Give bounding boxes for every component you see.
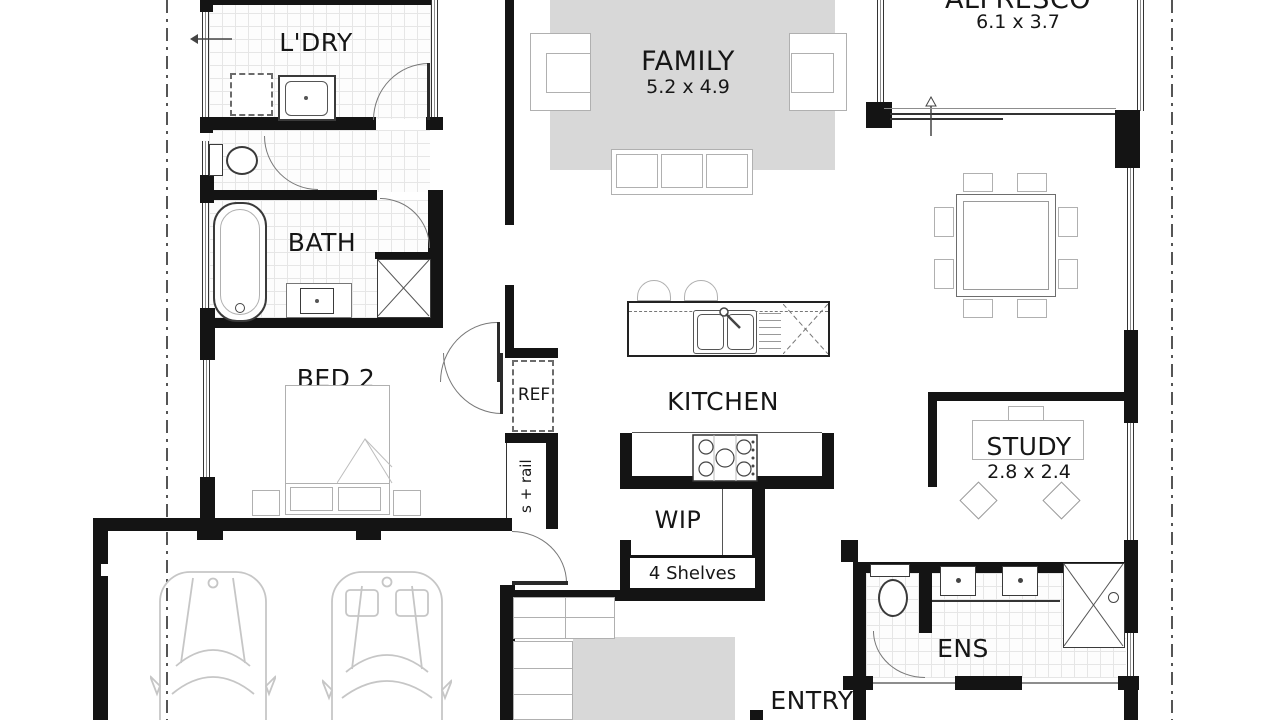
dishwasher-icon bbox=[783, 304, 828, 354]
drain-icon bbox=[304, 96, 308, 100]
faucet-icon bbox=[718, 306, 744, 332]
bath-window bbox=[202, 203, 209, 308]
door-leaf bbox=[512, 581, 568, 585]
wall bbox=[866, 102, 892, 128]
armchair-cushion bbox=[546, 53, 591, 93]
family-dims: 5.2 x 4.9 bbox=[646, 76, 730, 98]
bedside-table bbox=[393, 490, 421, 516]
shelf-line bbox=[514, 694, 572, 695]
pantry-shelves: 4 Shelves bbox=[627, 555, 758, 591]
wall bbox=[200, 0, 213, 12]
door-swing bbox=[512, 531, 567, 583]
washing-machine-space bbox=[230, 73, 273, 116]
wall bbox=[356, 531, 381, 540]
tap-icon bbox=[956, 578, 961, 583]
door-swing bbox=[443, 353, 502, 414]
wall bbox=[928, 392, 937, 487]
vanity-counter bbox=[932, 600, 1060, 602]
car bbox=[150, 566, 276, 720]
shower bbox=[377, 259, 431, 318]
pillow bbox=[290, 487, 333, 511]
drainer bbox=[759, 313, 781, 351]
sofa-cushion bbox=[616, 154, 658, 188]
dining-chair bbox=[1017, 173, 1047, 192]
wall bbox=[1118, 676, 1139, 690]
wall bbox=[200, 190, 377, 200]
chair bbox=[959, 481, 997, 519]
toilet bbox=[878, 579, 908, 617]
sofa-cushion bbox=[706, 154, 748, 188]
wall-notch bbox=[101, 564, 108, 576]
wardrobe-label: s + rail bbox=[508, 443, 544, 529]
door-threshold bbox=[873, 682, 955, 684]
pillow bbox=[338, 487, 381, 511]
dining-chair bbox=[934, 207, 954, 237]
dining-chair bbox=[1058, 259, 1078, 289]
dining-chair bbox=[1058, 207, 1078, 237]
pantry-return bbox=[722, 489, 723, 556]
alfresco-dims: 6.1 x 3.7 bbox=[976, 11, 1060, 33]
wall bbox=[928, 392, 1124, 401]
bench-edge bbox=[632, 432, 822, 433]
shelf-line bbox=[514, 668, 572, 669]
bathtub-inner bbox=[220, 209, 260, 315]
toilet-cistern bbox=[209, 144, 223, 176]
pantry-shelves-label: 4 Shelves bbox=[649, 563, 736, 584]
study-label: STUDY bbox=[986, 432, 1071, 461]
door-leaf bbox=[500, 353, 503, 414]
study-dims: 2.8 x 2.4 bbox=[987, 461, 1071, 483]
boundary-line-right bbox=[1171, 0, 1173, 720]
chair bbox=[1042, 481, 1080, 519]
kitchen-label: KITCHEN bbox=[667, 387, 779, 416]
dining-chair bbox=[934, 259, 954, 289]
wall bbox=[1124, 330, 1138, 423]
dining-window bbox=[1127, 168, 1134, 330]
shelving-unit bbox=[513, 641, 573, 720]
dining-chair bbox=[963, 299, 993, 318]
bed-fold-icon bbox=[337, 437, 393, 484]
clothesline-arrow-icon bbox=[188, 30, 234, 48]
shelf-line bbox=[565, 598, 566, 638]
shower-glass-icon bbox=[378, 260, 432, 319]
breakfast-stool bbox=[684, 280, 718, 301]
bath-label: BATH bbox=[288, 228, 356, 257]
dining-table-inner bbox=[963, 201, 1049, 290]
dining-chair bbox=[1017, 299, 1047, 318]
alfresco-screen bbox=[1137, 0, 1144, 111]
wip-label: WIP bbox=[655, 506, 702, 534]
wall bbox=[841, 540, 858, 562]
wall bbox=[505, 348, 558, 358]
dining-table bbox=[956, 194, 1056, 297]
sofa-cushion bbox=[661, 154, 703, 188]
fridge-label: REF bbox=[518, 385, 550, 405]
shelving-unit bbox=[513, 597, 615, 639]
door-threshold bbox=[1022, 682, 1118, 684]
family-label: FAMILY bbox=[641, 46, 735, 77]
ensuite-label: ENS bbox=[937, 634, 989, 663]
wall bbox=[505, 433, 558, 443]
wall bbox=[375, 252, 431, 259]
bed2-window bbox=[203, 360, 210, 477]
entry-label: ENTRY bbox=[770, 686, 853, 715]
floor-plan: L'DRY BATH REF s + rail BED 2 4.2 x 2.8 bbox=[0, 0, 1280, 720]
stacker-door-panel bbox=[890, 118, 1003, 120]
dining-chair bbox=[963, 173, 993, 192]
door-leaf bbox=[427, 63, 430, 120]
bath-tap-icon bbox=[235, 303, 245, 313]
shower-glass-icon bbox=[1064, 564, 1126, 649]
cooktop-icon bbox=[692, 434, 762, 484]
toilet bbox=[226, 146, 258, 175]
bedside-table bbox=[252, 490, 280, 516]
wall bbox=[93, 518, 512, 531]
shelf-line bbox=[514, 617, 614, 618]
alfresco-edge bbox=[884, 108, 1116, 109]
tap-icon bbox=[315, 299, 319, 303]
laundry-window bbox=[202, 12, 209, 117]
entry-rug bbox=[573, 637, 735, 720]
wall bbox=[505, 0, 514, 225]
door-direction-arrow-icon bbox=[921, 96, 941, 138]
wall bbox=[545, 443, 558, 529]
laundry-label: L'DRY bbox=[279, 28, 353, 57]
wall bbox=[919, 562, 932, 633]
car bbox=[322, 566, 452, 720]
toilet-cistern bbox=[870, 564, 910, 577]
wall bbox=[955, 676, 1022, 690]
shower bbox=[1063, 563, 1125, 648]
shower-rose-icon bbox=[1108, 592, 1119, 603]
wc-window bbox=[202, 141, 209, 175]
wall bbox=[750, 710, 763, 720]
tap-icon bbox=[1018, 578, 1023, 583]
breakfast-stool bbox=[637, 280, 671, 301]
laundry-east-wall bbox=[431, 0, 438, 119]
study-window bbox=[1127, 423, 1134, 540]
family-east-wall bbox=[877, 0, 884, 103]
wall bbox=[843, 676, 873, 690]
wall bbox=[197, 531, 223, 540]
wall bbox=[200, 308, 215, 360]
wall bbox=[1115, 110, 1140, 168]
wall bbox=[93, 531, 108, 720]
wall bbox=[209, 0, 437, 5]
armchair-cushion bbox=[791, 53, 834, 93]
wall bbox=[200, 477, 215, 518]
wall bbox=[1124, 540, 1138, 633]
wall bbox=[853, 573, 866, 720]
